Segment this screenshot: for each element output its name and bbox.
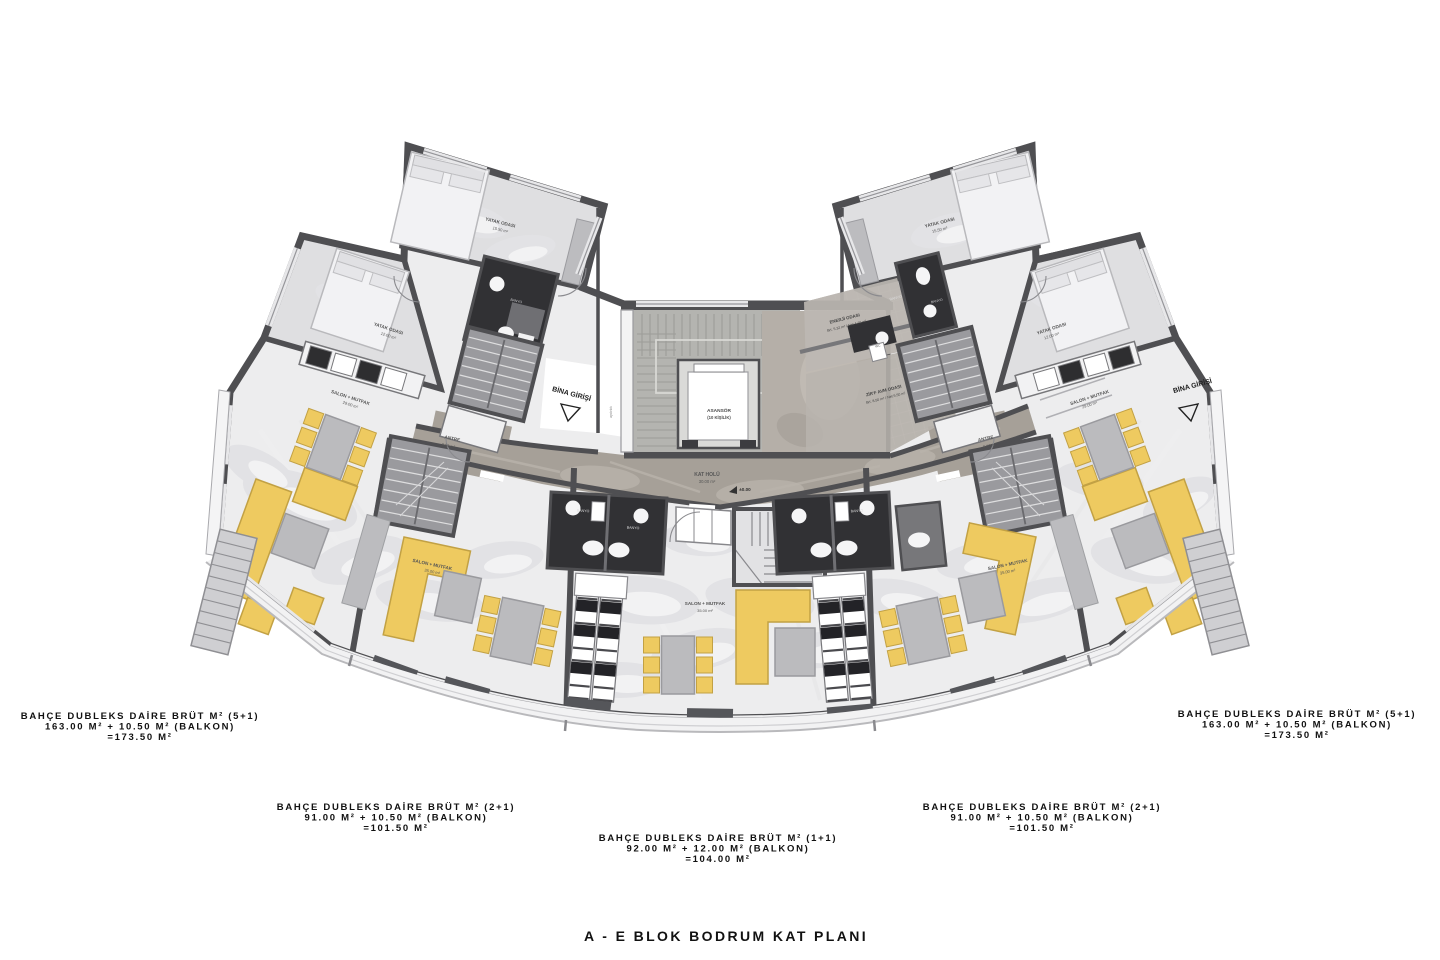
svg-text:35.00 m²: 35.00 m²: [697, 608, 713, 613]
svg-text:30.00 m²: 30.00 m²: [699, 479, 716, 484]
svg-text:A - E BLOK BODRUM KAT PLANI: A - E BLOK BODRUM KAT PLANI: [584, 928, 868, 944]
svg-text:BANYO: BANYO: [627, 526, 640, 531]
svg-text:=173.50 M²: =173.50 M²: [1264, 730, 1329, 741]
svg-text:BAHÇE DUBLEKS DAİRE BRÜT M² (2: BAHÇE DUBLEKS DAİRE BRÜT M² (2+1): [923, 802, 1161, 813]
svg-text:(10 KİŞİLİK): (10 KİŞİLİK): [707, 415, 731, 420]
svg-text:BANYO: BANYO: [851, 509, 864, 514]
svg-text:BAHÇE DUBLEKS DAİRE BRÜT M² (5: BAHÇE DUBLEKS DAİRE BRÜT M² (5+1): [21, 711, 259, 722]
svg-text:92.00 M² + 12.00 M² (BALKON): 92.00 M² + 12.00 M² (BALKON): [626, 844, 809, 855]
svg-text:=101.50 M²: =101.50 M²: [1009, 823, 1074, 834]
svg-text:BANYO: BANYO: [577, 509, 590, 514]
svg-text:ASANSÖR: ASANSÖR: [707, 407, 732, 414]
svg-text:KAT HOLÜ: KAT HOLÜ: [694, 471, 720, 478]
svg-text:91.00 M² + 10.50 M² (BALKON): 91.00 M² + 10.50 M² (BALKON): [950, 813, 1133, 824]
svg-text:91.00 M² + 10.50 M² (BALKON): 91.00 M² + 10.50 M² (BALKON): [304, 813, 487, 824]
svg-text:±0.00: ±0.00: [739, 487, 751, 492]
svg-text:SALON + MUTFAK: SALON + MUTFAK: [685, 601, 726, 606]
svg-text:=173.50 M²: =173.50 M²: [107, 732, 172, 743]
svg-text:BAHÇE DUBLEKS DAİRE BRÜT M² (2: BAHÇE DUBLEKS DAİRE BRÜT M² (2+1): [277, 802, 515, 813]
svg-text:BAHÇE DUBLEKS DAİRE BRÜT M² (5: BAHÇE DUBLEKS DAİRE BRÜT M² (5+1): [1178, 709, 1416, 720]
svg-text:BAHÇE DUBLEKS DAİRE BRÜT M² (1: BAHÇE DUBLEKS DAİRE BRÜT M² (1+1): [599, 833, 837, 844]
svg-text:163.00 M² + 10.50 M² (BALKON): 163.00 M² + 10.50 M² (BALKON): [45, 722, 235, 733]
svg-text:=104.00 M²: =104.00 M²: [685, 854, 750, 865]
svg-text:=101.50 M²: =101.50 M²: [363, 823, 428, 834]
svg-text:aydınlık: aydınlık: [609, 406, 613, 418]
svg-text:163.00 M² + 10.50 M² (BALKON): 163.00 M² + 10.50 M² (BALKON): [1202, 720, 1392, 731]
